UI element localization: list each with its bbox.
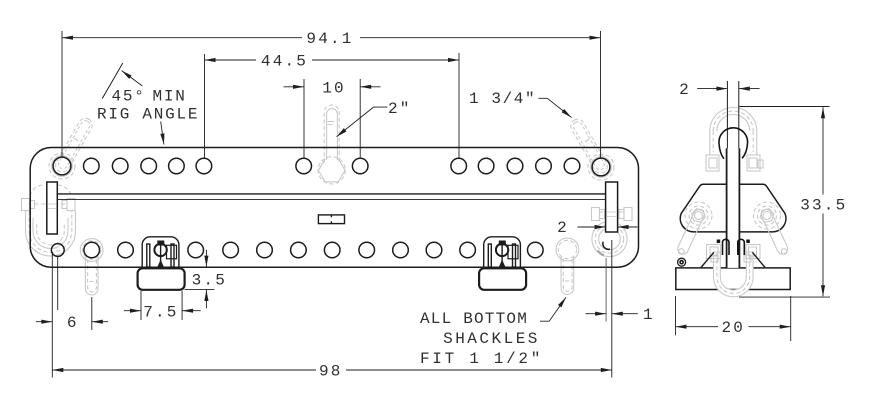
svg-text:1 3/4": 1 3/4" [469, 90, 536, 108]
svg-text:2: 2 [557, 219, 569, 237]
svg-text:RIG ANGLE: RIG ANGLE [97, 106, 199, 124]
svg-text:6: 6 [67, 314, 79, 332]
svg-text:94.1: 94.1 [306, 30, 353, 48]
svg-text:SHACKLES: SHACKLES [443, 330, 540, 348]
svg-text:98: 98 [319, 363, 343, 381]
svg-text:45°: 45° [112, 88, 146, 106]
svg-text:44.5: 44.5 [261, 53, 308, 71]
svg-text:2": 2" [388, 100, 412, 118]
svg-text:2: 2 [679, 81, 691, 99]
svg-text:10: 10 [322, 79, 346, 97]
svg-text:ALL BOTTOM: ALL BOTTOM [420, 310, 528, 328]
svg-text:20: 20 [721, 319, 745, 337]
svg-text:3.5: 3.5 [192, 272, 227, 290]
svg-text:33.5: 33.5 [800, 197, 847, 215]
svg-text:FIT 1 1/2": FIT 1 1/2" [420, 350, 543, 368]
svg-text:7.5: 7.5 [143, 304, 178, 322]
svg-text:1: 1 [643, 306, 655, 324]
svg-text:MIN: MIN [153, 88, 187, 106]
